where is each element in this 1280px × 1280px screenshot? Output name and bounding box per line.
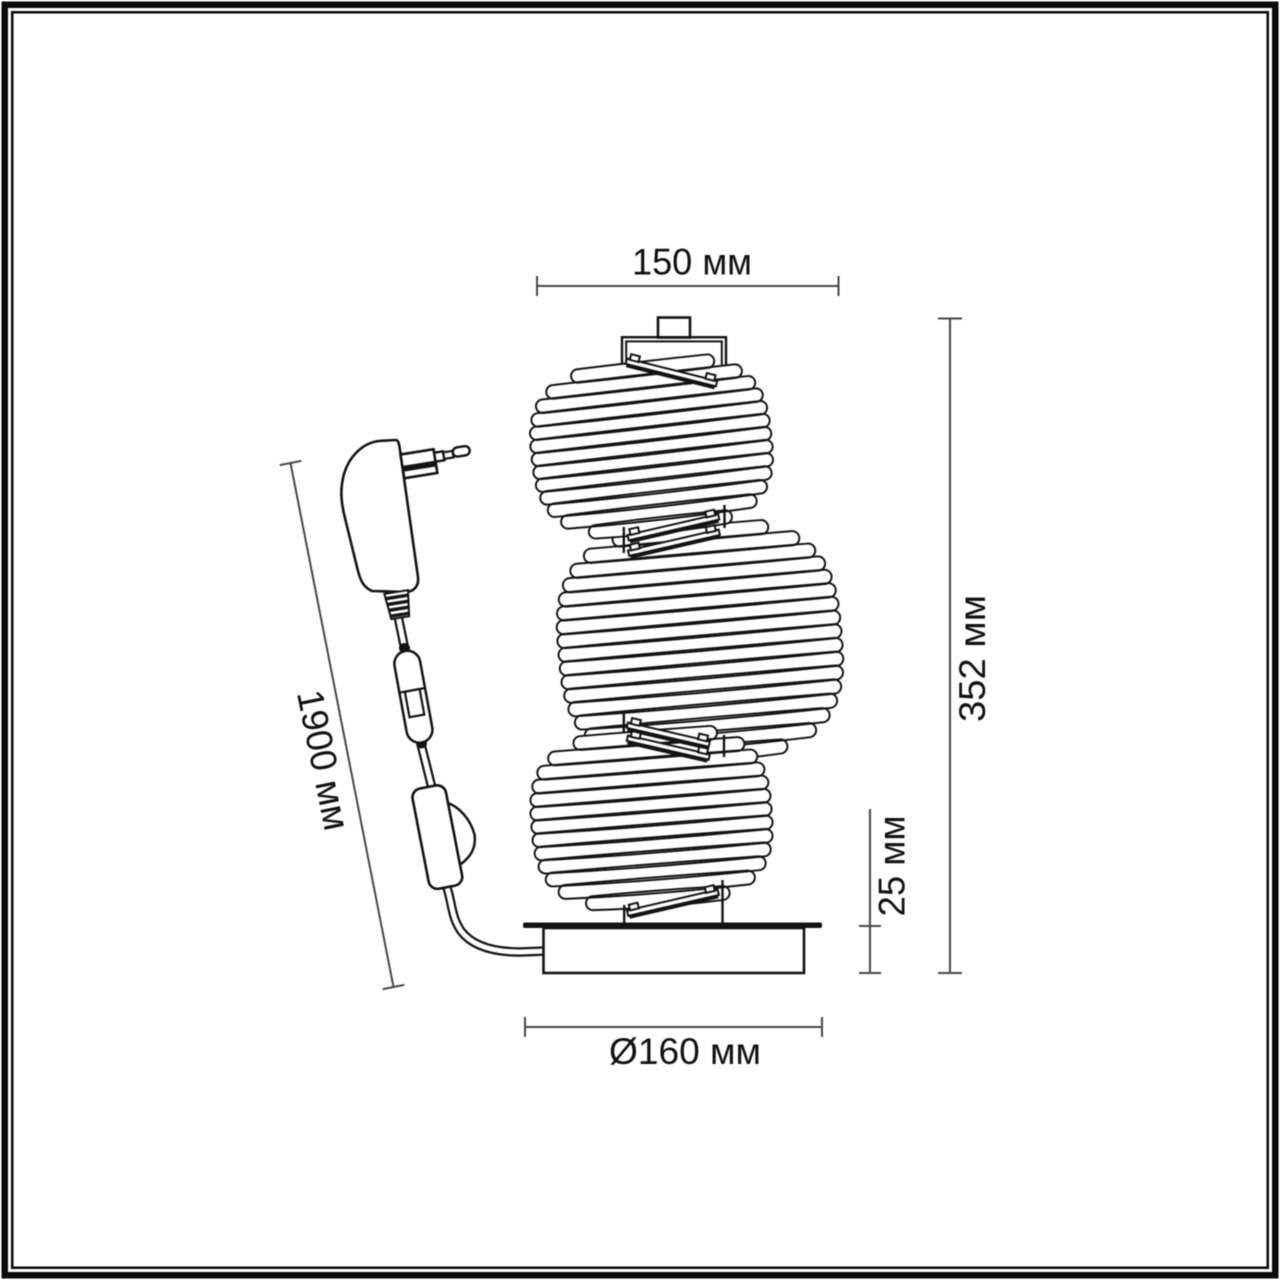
svg-text:25 мм: 25 мм <box>872 816 913 917</box>
svg-text:1900 мм: 1900 мм <box>289 686 357 833</box>
svg-text:Ø160 мм: Ø160 мм <box>609 1031 761 1072</box>
svg-text:150 мм: 150 мм <box>632 242 752 283</box>
svg-text:352 мм: 352 мм <box>952 595 993 722</box>
